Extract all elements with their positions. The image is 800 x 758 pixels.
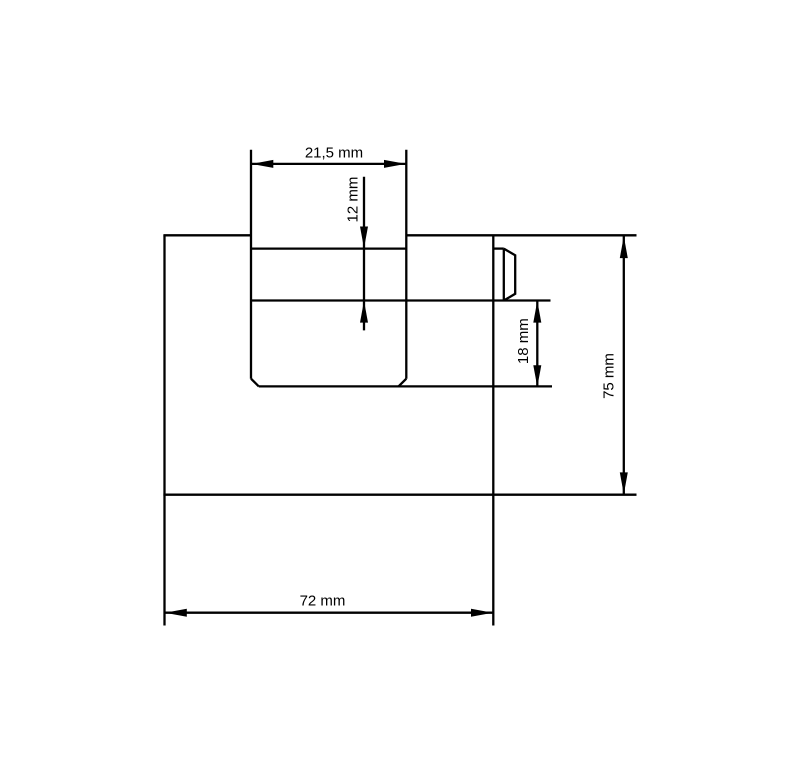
svg-text:18 mm: 18 mm [515, 318, 532, 364]
svg-text:75 mm: 75 mm [601, 353, 618, 399]
svg-text:72 mm: 72 mm [300, 593, 346, 610]
svg-text:21,5 mm: 21,5 mm [305, 144, 363, 161]
svg-text:12 mm: 12 mm [345, 177, 362, 223]
